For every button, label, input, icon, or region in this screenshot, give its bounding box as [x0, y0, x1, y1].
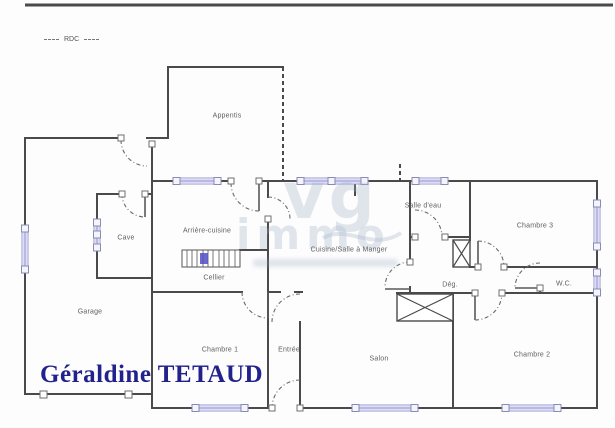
room-label-wc: W.C. — [556, 281, 572, 288]
floor-plan-canvas: RDC vg immo — [0, 0, 615, 428]
room-label-salon: Salon — [370, 356, 389, 363]
watermark-tagline-blur — [253, 259, 398, 267]
room-label-cuisine: Cuisine/Salle à Manger — [311, 247, 388, 254]
closet-box-large-icon — [397, 294, 453, 321]
floor-tag: RDC — [44, 36, 99, 43]
stairs-marker — [200, 253, 208, 264]
room-label-arriere-cuisine: Arrière-cuisine — [183, 228, 231, 235]
room-label-salle-eau: Salle d'eau — [405, 203, 442, 210]
room-label-chambre-2: Chambre 2 — [514, 352, 550, 359]
room-label-cave: Cave — [117, 235, 134, 242]
room-label-cellier: Cellier — [203, 275, 224, 282]
room-label-degagement: Dég. — [442, 282, 458, 289]
floor-label: RDC — [64, 36, 79, 43]
room-label-chambre-1: Chambre 1 — [202, 347, 238, 354]
room-label-appentis: Appentis — [213, 113, 242, 120]
room-label-entree: Entrée — [278, 347, 300, 354]
closet-box-small-icon — [453, 240, 470, 267]
room-label-garage: Garage — [78, 309, 103, 316]
agent-name-text: Géraldine TETAUD — [40, 361, 263, 389]
dash-left-icon — [44, 39, 59, 40]
stairs-icon — [182, 250, 240, 267]
room-label-chambre-3: Chambre 3 — [517, 223, 553, 230]
dash-right-icon — [84, 39, 99, 40]
